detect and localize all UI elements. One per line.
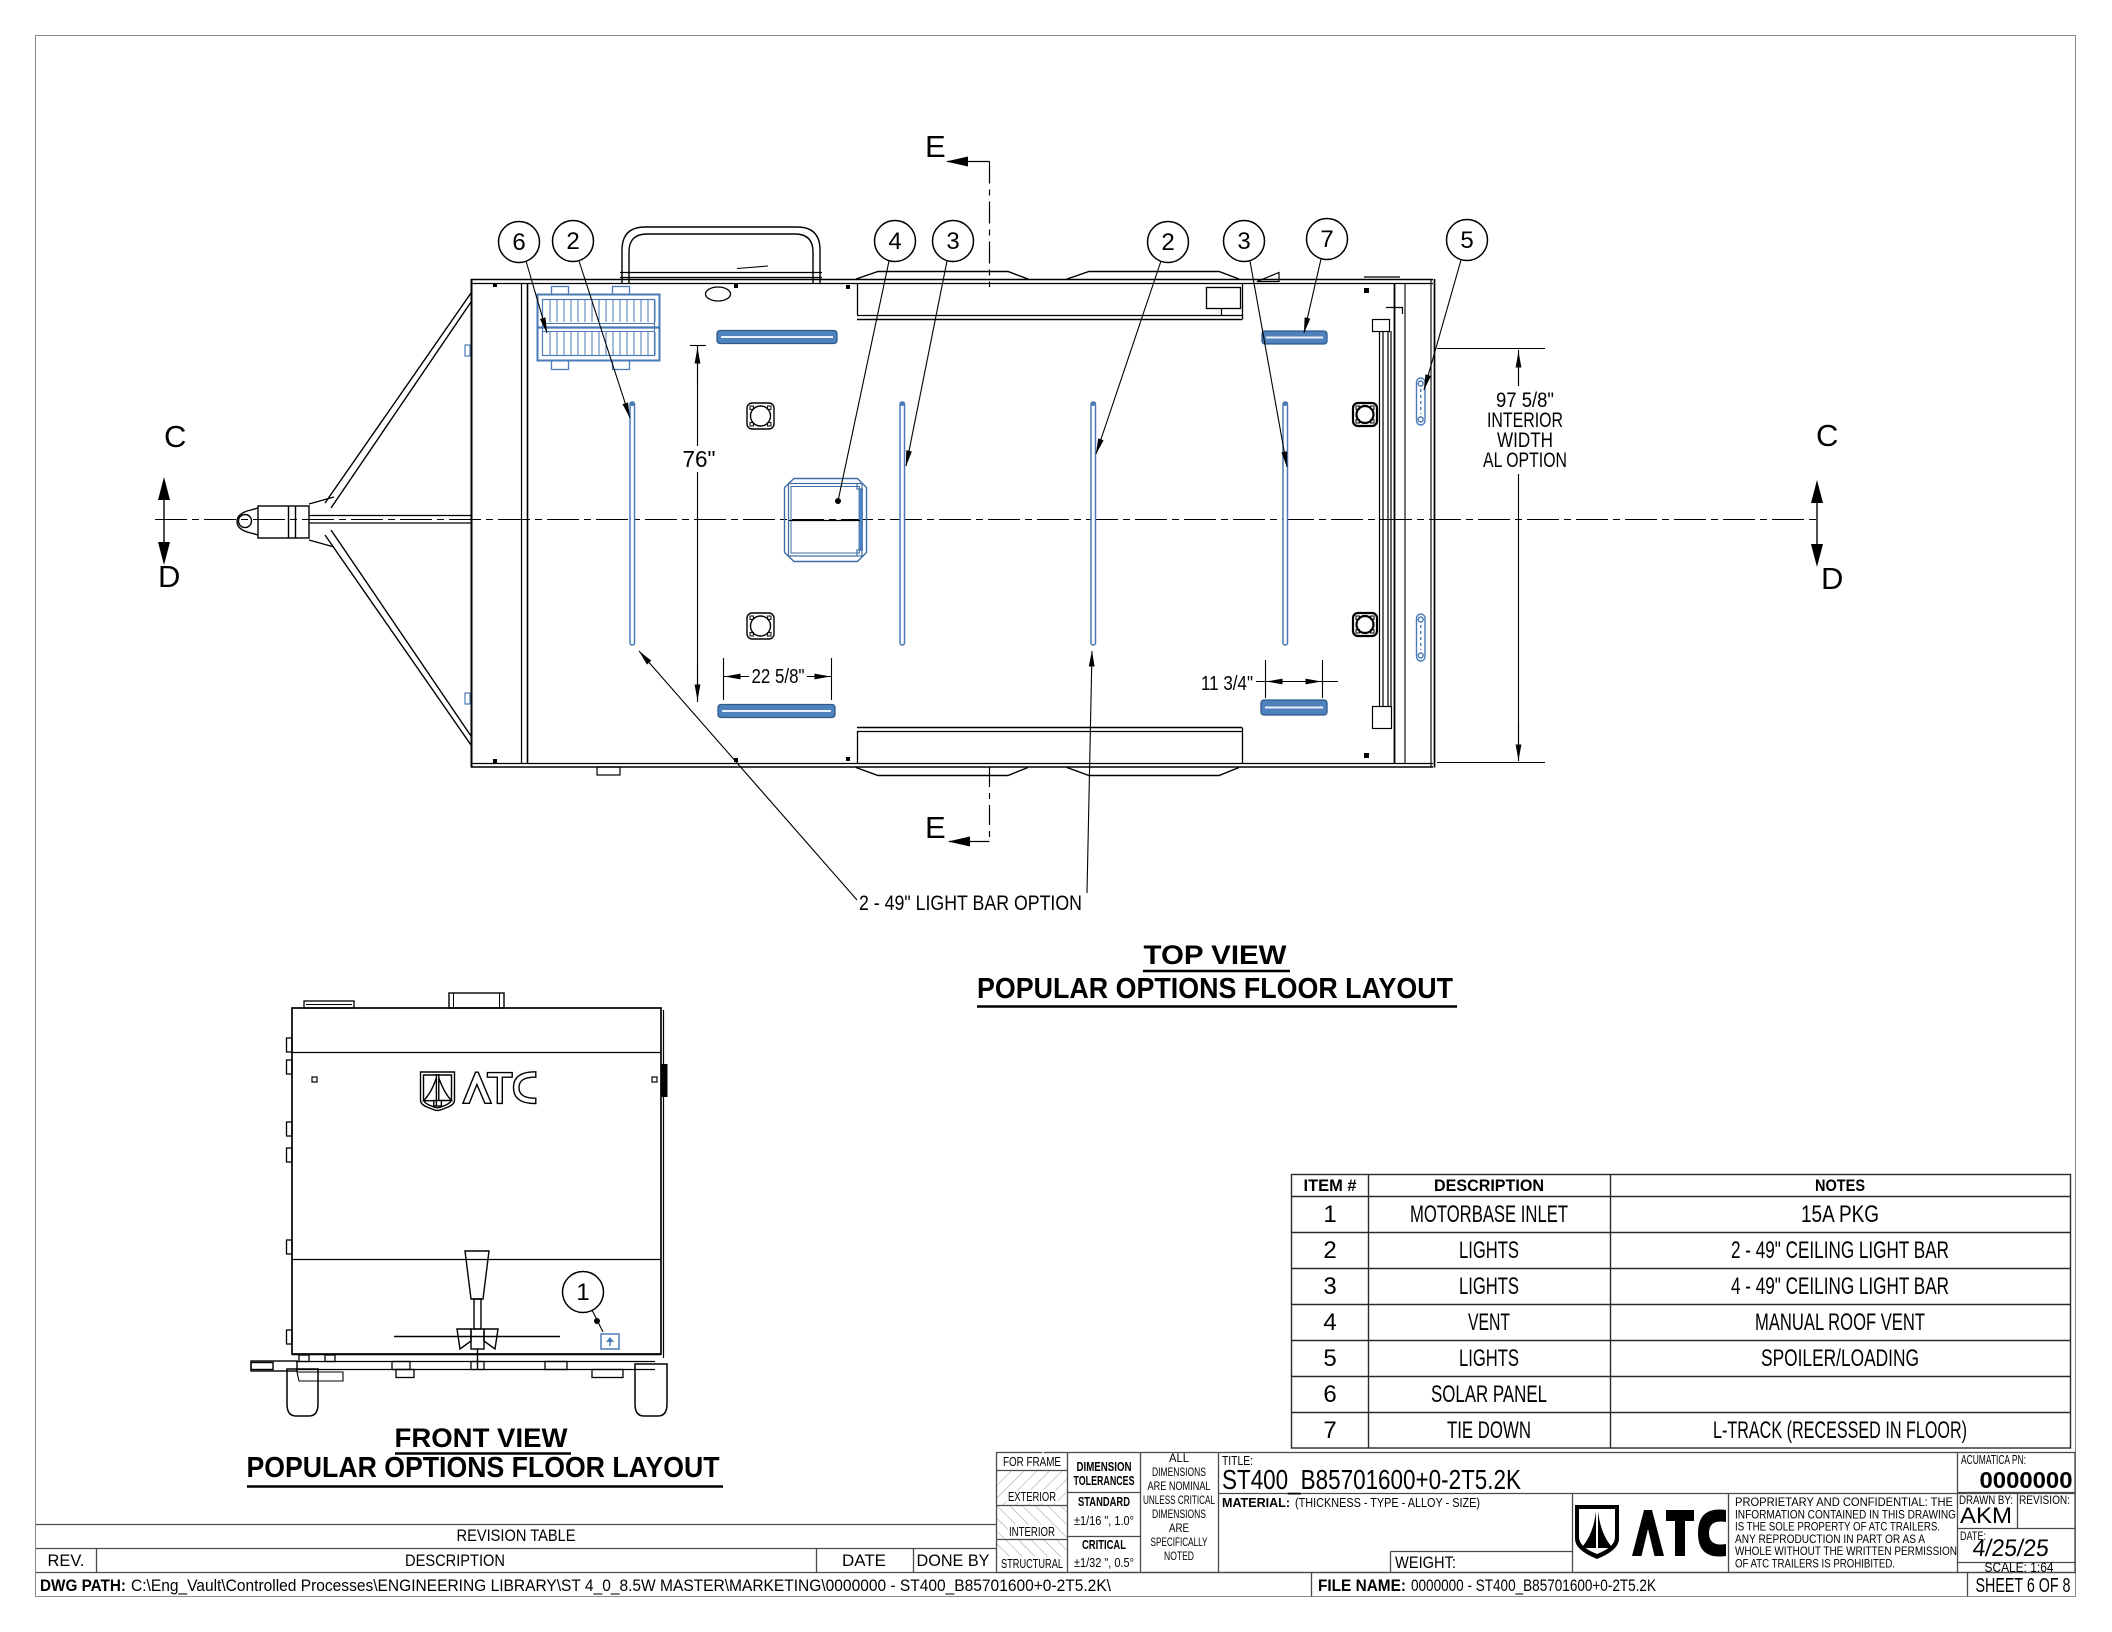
svg-text:DIMENSION: DIMENSION (1077, 1460, 1132, 1474)
svg-text:FRONT VIEW: FRONT VIEW (395, 1423, 569, 1453)
svg-text:22 5/8": 22 5/8" (752, 666, 805, 688)
svg-text:STRUCTURAL: STRUCTURAL (1001, 1557, 1063, 1571)
svg-text:DIMENSIONS: DIMENSIONS (1152, 1465, 1206, 1479)
svg-text:AKM: AKM (1960, 1503, 2012, 1528)
svg-text:AL OPTION: AL OPTION (1483, 449, 1567, 472)
svg-text:L-TRACK (RECESSED IN FLOOR): L-TRACK (RECESSED IN FLOOR) (1713, 1417, 1967, 1444)
svg-text:REV.: REV. (48, 1551, 85, 1570)
svg-text:UNLESS CRITICAL: UNLESS CRITICAL (1143, 1493, 1215, 1507)
svg-text:SCALE: 1:64: SCALE: 1:64 (1985, 1560, 2054, 1575)
svg-text:(THICKNESS - TYPE - ALLOY - SI: (THICKNESS - TYPE - ALLOY - SIZE) (1295, 1495, 1480, 1510)
svg-text:STANDARD: STANDARD (1078, 1495, 1130, 1509)
svg-text:ST400_B85701600+0-2T5.2K: ST400_B85701600+0-2T5.2K (1222, 1464, 1521, 1495)
svg-text:EXTERIOR: EXTERIOR (1008, 1490, 1056, 1504)
svg-text:D: D (158, 559, 180, 594)
svg-text:OF ATC TRAILERS IS PROHIBITED.: OF ATC TRAILERS IS PROHIBITED. (1735, 1557, 1895, 1571)
svg-text:ARE NOMINAL: ARE NOMINAL (1148, 1479, 1211, 1493)
svg-text:MOTORBASE INLET: MOTORBASE INLET (1410, 1201, 1568, 1228)
svg-text:E: E (925, 129, 946, 164)
svg-text:6: 6 (1323, 1381, 1336, 1408)
svg-text:LIGHTS: LIGHTS (1459, 1345, 1519, 1372)
svg-text:DATE: DATE (842, 1551, 886, 1570)
svg-text:DWG PATH:C:\Eng_Vault\Controll: DWG PATH:C:\Eng_Vault\Controlled Process… (40, 1576, 1111, 1595)
svg-text:E: E (925, 810, 946, 845)
svg-text:11 3/4": 11 3/4" (1201, 673, 1253, 695)
svg-text:TOP VIEW: TOP VIEW (1144, 940, 1288, 970)
svg-text:2: 2 (1323, 1237, 1336, 1264)
svg-text:REVISION TABLE: REVISION TABLE (457, 1526, 576, 1545)
svg-text:LIGHTS: LIGHTS (1459, 1237, 1519, 1264)
svg-text:NOTED: NOTED (1164, 1549, 1194, 1563)
svg-text:±1/16 ", 1.0°: ±1/16 ", 1.0° (1074, 1514, 1134, 1528)
svg-text:SOLAR PANEL: SOLAR PANEL (1431, 1381, 1547, 1408)
svg-text:LIGHTS: LIGHTS (1459, 1273, 1519, 1300)
svg-text:4: 4 (888, 228, 901, 255)
svg-text:C: C (164, 419, 186, 454)
svg-text:76": 76" (683, 446, 716, 472)
svg-text:4: 4 (1323, 1309, 1336, 1336)
svg-text:2: 2 (1161, 229, 1174, 256)
svg-text:2 - 49" LIGHT BAR OPTION: 2 - 49" LIGHT BAR OPTION (859, 892, 1082, 915)
svg-text:DONE BY: DONE BY (917, 1551, 990, 1570)
svg-text:5: 5 (1460, 227, 1473, 254)
svg-text:TOLERANCES: TOLERANCES (1074, 1474, 1135, 1488)
svg-text:DIMENSIONS: DIMENSIONS (1152, 1507, 1206, 1521)
svg-text:ALL: ALL (1169, 1451, 1189, 1465)
svg-text:7: 7 (1320, 226, 1333, 253)
svg-text:NOTES: NOTES (1815, 1176, 1865, 1195)
svg-text:D: D (1821, 561, 1843, 596)
svg-text:SPECIFICALLY: SPECIFICALLY (1151, 1535, 1208, 1549)
svg-text:0000000: 0000000 (1980, 1467, 2073, 1493)
svg-text:4/25/25: 4/25/25 (1971, 1535, 2050, 1562)
svg-text:2 - 49" CEILING LIGHT BAR: 2 - 49" CEILING LIGHT BAR (1731, 1237, 1949, 1264)
svg-text:ACUMATICA PN:: ACUMATICA PN: (1961, 1452, 2026, 1467)
svg-text:7: 7 (1323, 1417, 1336, 1444)
svg-text:3: 3 (946, 228, 959, 255)
svg-text:15A PKG: 15A PKG (1801, 1201, 1879, 1228)
svg-text:C: C (1816, 418, 1838, 453)
svg-text:5: 5 (1323, 1345, 1336, 1372)
svg-text:±1/32 ", 0.5°: ±1/32 ", 0.5° (1074, 1556, 1134, 1570)
svg-text:SHEET 6 OF 8: SHEET 6 OF 8 (1976, 1575, 2071, 1597)
svg-text:ITEM #: ITEM # (1304, 1176, 1358, 1195)
svg-text:VENT: VENT (1468, 1309, 1510, 1336)
svg-text:CRITICAL: CRITICAL (1082, 1538, 1126, 1552)
svg-text:1: 1 (576, 1279, 589, 1306)
svg-text:FOR FRAME: FOR FRAME (1003, 1455, 1061, 1469)
svg-text:1: 1 (1323, 1201, 1336, 1228)
svg-text:MANUAL ROOF VENT: MANUAL ROOF VENT (1755, 1309, 1925, 1336)
svg-text:INTERIOR: INTERIOR (1009, 1525, 1055, 1539)
svg-text:6: 6 (512, 229, 525, 256)
svg-text:4 - 49" CEILING LIGHT BAR: 4 - 49" CEILING LIGHT BAR (1731, 1273, 1949, 1300)
svg-text:DESCRIPTION: DESCRIPTION (1434, 1176, 1544, 1195)
svg-text:ARE: ARE (1169, 1521, 1189, 1535)
svg-text:FILE NAME:0000000 - ST400_B857: FILE NAME:0000000 - ST400_B85701600+0-2T… (1318, 1576, 1657, 1595)
svg-text:3: 3 (1323, 1273, 1336, 1300)
svg-text:POPULAR OPTIONS FLOOR LAYOUT: POPULAR OPTIONS FLOOR LAYOUT (247, 1452, 720, 1484)
svg-text:2: 2 (566, 228, 579, 255)
svg-text:TIE DOWN: TIE DOWN (1447, 1417, 1531, 1444)
svg-text:MATERIAL:: MATERIAL: (1222, 1495, 1290, 1510)
svg-text:WEIGHT:: WEIGHT: (1395, 1553, 1456, 1572)
svg-text:SPOILER/LOADING: SPOILER/LOADING (1761, 1345, 1919, 1372)
svg-text:REVISION:: REVISION: (2019, 1493, 2070, 1507)
svg-text:3: 3 (1237, 228, 1250, 255)
svg-text:POPULAR OPTIONS FLOOR LAYOUT: POPULAR OPTIONS FLOOR LAYOUT (977, 973, 1453, 1005)
svg-text:DESCRIPTION: DESCRIPTION (405, 1551, 505, 1570)
